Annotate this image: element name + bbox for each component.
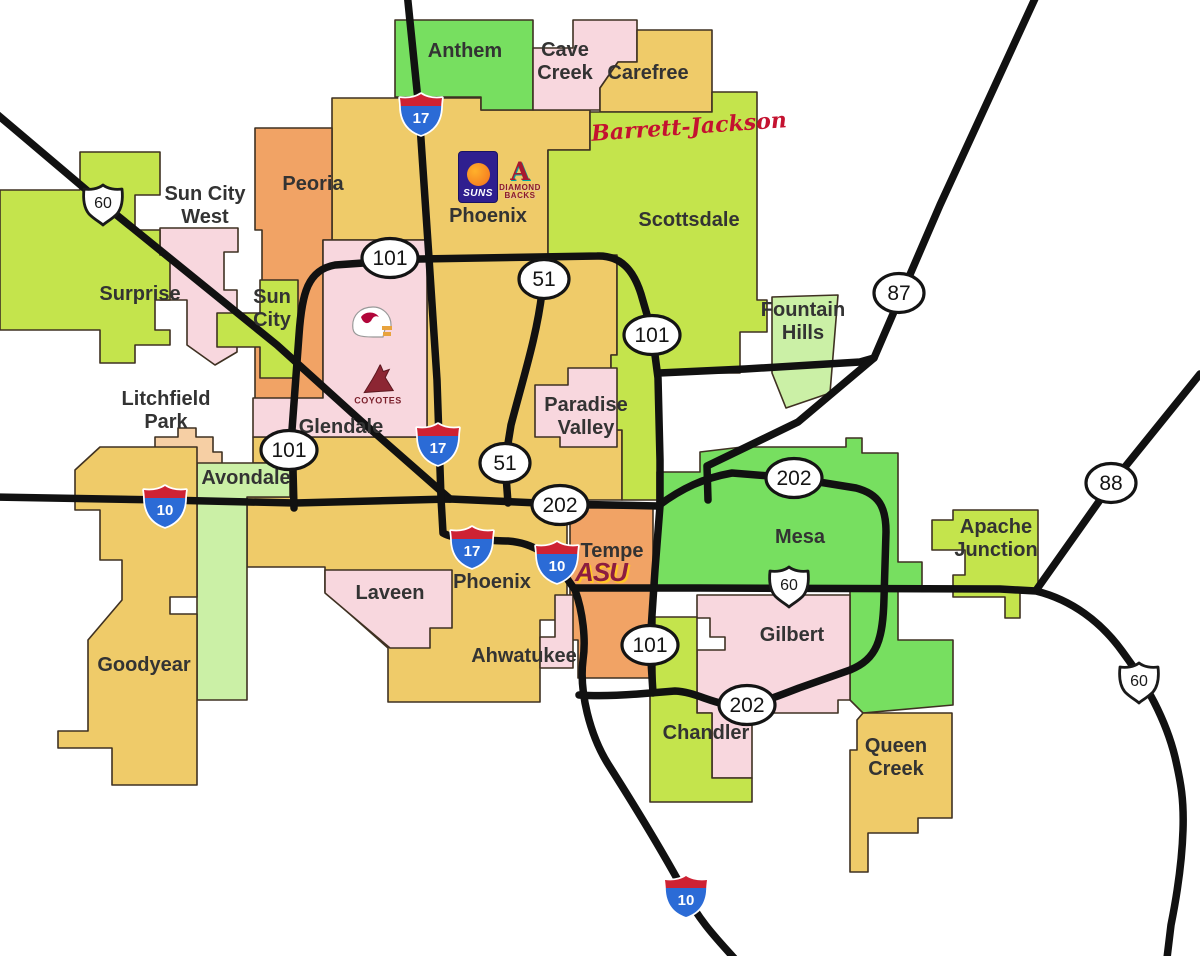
label-chandler: Chandler <box>663 722 750 744</box>
svg-text:51: 51 <box>532 268 555 291</box>
svg-text:101: 101 <box>271 439 306 462</box>
route-marker-sr-101: 101 <box>362 239 418 278</box>
route-marker-sr-101: 101 <box>624 316 680 355</box>
cardinals-helmet-logo <box>349 303 393 347</box>
svg-text:60: 60 <box>1130 673 1148 690</box>
suns-basketball-icon <box>467 163 490 186</box>
label-peoria: Peoria <box>282 173 344 195</box>
svg-text:202: 202 <box>776 467 811 490</box>
label-scottsdale: Scottsdale <box>638 209 739 231</box>
svg-text:202: 202 <box>729 694 764 717</box>
label-carefree: Carefree <box>607 62 688 84</box>
svg-text:60: 60 <box>780 577 798 594</box>
diamondbacks-logo-text-2: BACKS <box>505 191 536 199</box>
route-marker-sr-202: 202 <box>532 486 588 525</box>
label-sun-city-west: Sun CityWest <box>164 183 246 228</box>
diamondbacks-logo: A DIAMOND BACKS <box>499 161 541 200</box>
label-glendale: Glendale <box>299 416 383 438</box>
label-phoenix-south: Phoenix <box>453 571 531 593</box>
suns-logo-box: SUNS <box>458 151 498 203</box>
phoenix-metro-map: AnthemCaveCreekCarefreeSun CityWestPeori… <box>0 0 1200 956</box>
route-marker-sr-51: 51 <box>519 260 569 299</box>
svg-text:87: 87 <box>887 282 910 305</box>
label-avondale: Avondale <box>201 467 290 489</box>
svg-text:17: 17 <box>464 543 481 560</box>
label-phoenix-north: Phoenix <box>449 205 527 227</box>
region-mesa-east <box>850 588 953 713</box>
route-marker-sr-202: 202 <box>766 459 822 498</box>
route-marker-sr-87: 87 <box>874 274 924 313</box>
svg-text:101: 101 <box>634 324 669 347</box>
svg-text:10: 10 <box>157 502 174 519</box>
route-marker-i-10: 10 <box>665 876 707 917</box>
route-marker-sr-101: 101 <box>261 431 317 470</box>
label-sun-city: SunCity <box>253 286 292 331</box>
svg-text:88: 88 <box>1099 472 1122 495</box>
svg-text:17: 17 <box>413 110 430 127</box>
route-marker-sr-51: 51 <box>480 444 530 483</box>
label-apache-junction: ApacheJunction <box>954 516 1037 561</box>
coyote-head-icon <box>358 365 398 395</box>
route-marker-sr-202: 202 <box>719 686 775 725</box>
svg-text:10: 10 <box>678 892 695 909</box>
label-queen-creek: QueenCreek <box>865 735 927 780</box>
suns-logo-text: SUNS <box>463 189 493 199</box>
asu-logo: ASU <box>575 559 627 585</box>
label-laveen: Laveen <box>356 582 425 604</box>
region-surprise <box>0 152 170 363</box>
route-marker-sr-88: 88 <box>1086 464 1136 503</box>
suns-logo: SUNS <box>458 151 498 203</box>
label-gilbert: Gilbert <box>760 624 825 646</box>
svg-text:101: 101 <box>632 634 667 657</box>
svg-text:51: 51 <box>493 452 516 475</box>
label-surprise: Surprise <box>99 283 180 305</box>
svg-text:101: 101 <box>372 247 407 270</box>
label-cave-creek: CaveCreek <box>537 39 593 84</box>
svg-text:202: 202 <box>542 494 577 517</box>
label-ahwatukee: Ahwatukee <box>471 645 577 667</box>
cardinals-helmet-icon <box>349 303 393 343</box>
label-mesa: Mesa <box>775 526 826 548</box>
label-goodyear: Goodyear <box>97 654 191 676</box>
route-marker-sr-101: 101 <box>622 626 678 665</box>
svg-text:60: 60 <box>94 195 112 212</box>
coyotes-logo-text: COYOTES <box>354 397 402 406</box>
region-gilbert <box>697 595 850 778</box>
svg-text:17: 17 <box>430 440 447 457</box>
diamondbacks-a-icon: A <box>510 161 529 184</box>
coyotes-logo: COYOTES <box>354 365 402 406</box>
svg-text:10: 10 <box>549 558 566 575</box>
label-litchfield-park: LitchfieldPark <box>122 388 211 433</box>
label-anthem: Anthem <box>428 40 502 62</box>
